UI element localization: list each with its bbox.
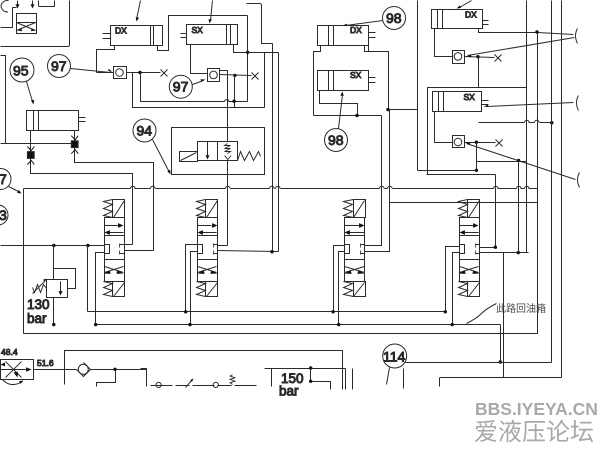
svg-text:130: 130 — [27, 297, 50, 312]
svg-text:3: 3 — [0, 207, 7, 223]
svg-text:114: 114 — [383, 349, 406, 365]
svg-text:bar: bar — [279, 384, 299, 399]
svg-text:BBS.IYEYA.CN: BBS.IYEYA.CN — [475, 399, 598, 419]
svg-text:97: 97 — [51, 58, 67, 74]
svg-text:DX: DX — [350, 25, 362, 35]
svg-text:DX: DX — [465, 10, 477, 20]
svg-text:48.4: 48.4 — [1, 347, 18, 357]
svg-text:爱液压论坛: 爱液压论坛 — [474, 419, 594, 446]
svg-text:51.6: 51.6 — [37, 358, 54, 368]
svg-text:SX: SX — [192, 25, 204, 35]
svg-text:SX: SX — [464, 92, 476, 102]
svg-text:98: 98 — [328, 132, 344, 148]
svg-text:95: 95 — [13, 63, 29, 79]
svg-text:DX: DX — [115, 26, 127, 36]
svg-text:7: 7 — [0, 171, 7, 187]
svg-text:98: 98 — [386, 10, 402, 26]
svg-text:SX: SX — [350, 70, 362, 80]
svg-text:bar: bar — [27, 311, 47, 326]
svg-text:97: 97 — [173, 79, 189, 95]
svg-text:94: 94 — [137, 123, 153, 139]
svg-text:此路回油箱: 此路回油箱 — [496, 302, 546, 315]
